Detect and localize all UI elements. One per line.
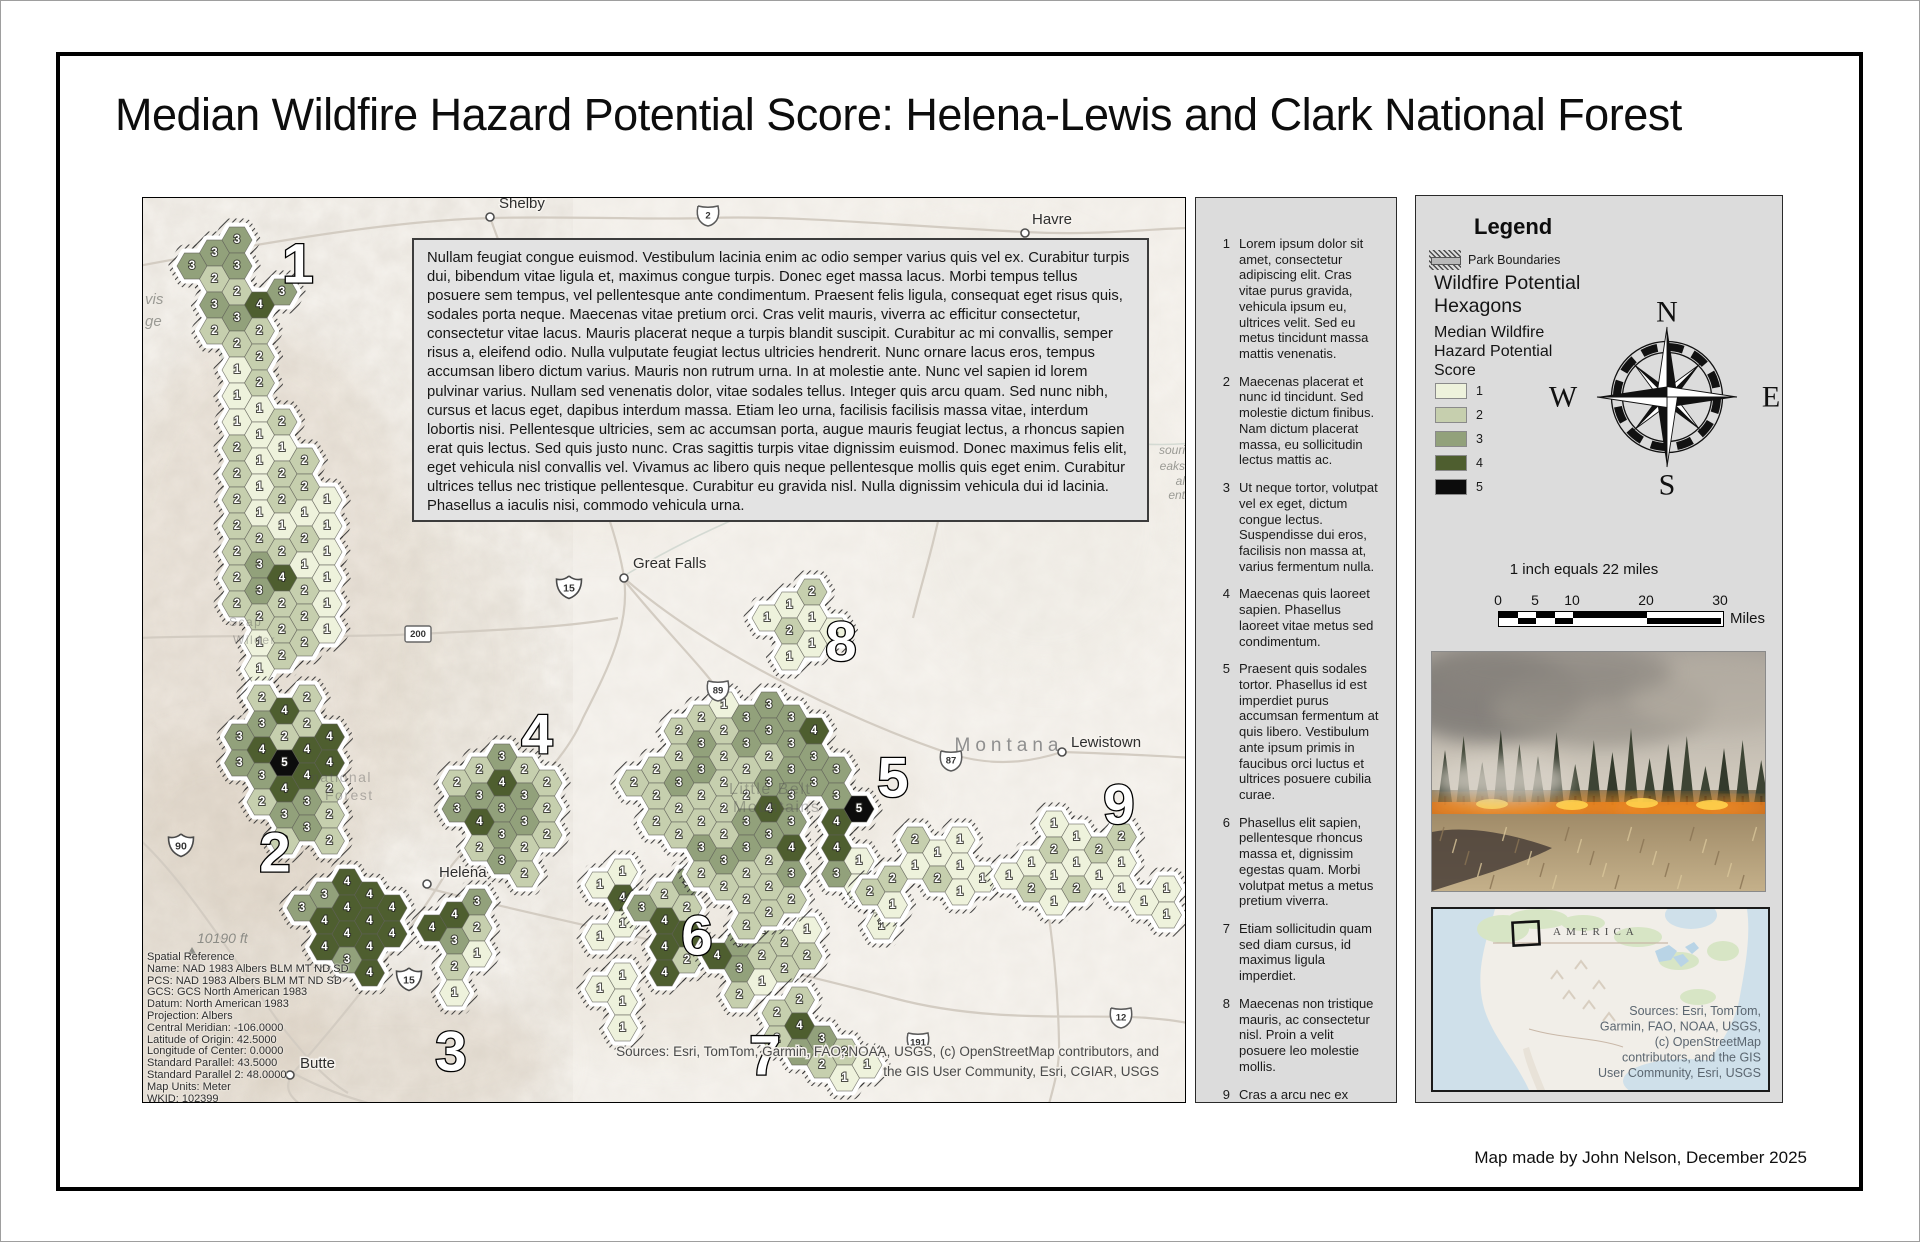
hex-score: 2 <box>259 692 265 704</box>
hex-score: 2 <box>234 468 240 480</box>
hex-score: 2 <box>279 468 285 480</box>
legend-class-row: 5 <box>1416 479 1536 495</box>
scalebar-tick-label: 30 <box>1712 592 1728 608</box>
hex-score: 2 <box>1073 883 1079 895</box>
scalebar-tick-label: 20 <box>1638 592 1654 608</box>
hex-score: 1 <box>597 983 604 995</box>
note-item: 6Phasellus elit sapien, pellentesque rho… <box>1218 815 1380 909</box>
hex-score: 2 <box>912 834 918 846</box>
hex-score: 2 <box>786 625 792 637</box>
hex-score: 2 <box>451 961 457 973</box>
note-text: Praesent quis sodales tortor. Phasellus … <box>1239 661 1380 802</box>
note-number: 5 <box>1218 661 1230 802</box>
hex-score: 1 <box>279 442 286 454</box>
faint-place-label: national <box>311 769 372 785</box>
hex-score: 2 <box>661 889 667 901</box>
scalebar-unit: Miles <box>1730 610 1765 627</box>
hex-score: 1 <box>841 1072 848 1084</box>
hex-score: 2 <box>234 546 240 558</box>
hex-score: 1 <box>324 624 331 636</box>
hex-score: 2 <box>796 994 802 1006</box>
hex-score: 1 <box>474 948 481 960</box>
hex-score: 1 <box>256 403 263 415</box>
hex-score: 1 <box>1163 883 1170 895</box>
edge-clipped-label: souri <box>1159 443 1185 457</box>
scalebar-segment <box>1536 618 1555 624</box>
hex-score: 3 <box>788 868 794 880</box>
legend-panel: Legend Park Boundaries Wildfire Potentia… <box>1415 195 1783 1103</box>
hex-score: 1 <box>721 699 728 711</box>
hex-score: 2 <box>721 803 727 815</box>
hex-score: 3 <box>236 731 242 743</box>
hex-score: 4 <box>451 909 458 921</box>
class-swatch <box>1435 479 1467 495</box>
hex-score: 1 <box>234 390 241 402</box>
hex-score: 4 <box>661 915 668 927</box>
numbered-notes-panel: 1Lorem ipsum dolor sit amet, consectetur… <box>1195 197 1397 1103</box>
faint-place-label: Mountains <box>733 799 820 816</box>
hex-score: 4 <box>304 770 311 782</box>
hex-score: 4 <box>811 725 818 737</box>
hex-score: 3 <box>766 699 772 711</box>
hex-score: 1 <box>597 931 604 943</box>
class-swatch <box>1435 455 1467 471</box>
hex-score: 3 <box>234 312 240 324</box>
hex-score: 2 <box>653 790 659 802</box>
hex-score: 3 <box>766 829 772 841</box>
main-map: 3332332432322212111122112212221211221212… <box>142 197 1186 1103</box>
hex-score: 1 <box>256 663 263 675</box>
city-marker <box>423 880 431 888</box>
hex-score: 4 <box>344 928 351 940</box>
hex-score: 2 <box>544 803 550 815</box>
class-swatch <box>1435 407 1467 423</box>
hex-score: 2 <box>766 855 772 867</box>
hex-score: 2 <box>676 725 682 737</box>
region-number-label: 1 <box>282 232 313 295</box>
hex-score: 2 <box>766 881 772 893</box>
note-text: Cras a arcu nec ex pharetra mollis. Viva… <box>1239 1087 1380 1104</box>
hex-score: 3 <box>766 725 772 737</box>
hex-score: 2 <box>889 873 895 885</box>
hex-score: 1 <box>979 873 986 885</box>
note-number: 4 <box>1218 586 1230 649</box>
hex-score: 4 <box>476 816 483 828</box>
hex-score: 1 <box>957 860 964 872</box>
hex-score: 2 <box>766 907 772 919</box>
hex-score: 1 <box>324 520 331 532</box>
hex-score: 1 <box>619 1022 626 1034</box>
hex-score: 2 <box>279 650 285 662</box>
note-text: Maecenas quis laoreet sapien. Phasellus … <box>1239 586 1380 649</box>
hex-score: 1 <box>234 364 241 376</box>
hex-score: 1 <box>301 559 308 571</box>
hex-score: 2 <box>279 546 285 558</box>
hex-score: 3 <box>743 738 749 750</box>
city-label: Great Falls <box>633 555 706 572</box>
faint-place-label: Little Belt <box>729 781 811 798</box>
hex-score: 2 <box>676 803 682 815</box>
hex-score: 3 <box>256 585 262 597</box>
inset-map-art: AMERICASources: Esri, TomTom,Garmin, FAO… <box>1433 909 1768 1090</box>
spatial-reference-line: Map Units: Meter <box>147 1082 349 1094</box>
hex-score: 3 <box>499 855 505 867</box>
hex-score: 3 <box>499 803 505 815</box>
scalebar-segment <box>1518 618 1537 624</box>
hex-score: 2 <box>301 637 307 649</box>
legend-class-row: 2 <box>1416 407 1536 423</box>
hex-score: 3 <box>811 751 817 763</box>
hex-score: 1 <box>957 886 964 898</box>
hex-score: 1 <box>324 494 331 506</box>
hex-score: 2 <box>698 868 704 880</box>
hex-score: 2 <box>259 796 265 808</box>
hex-score: 3 <box>521 790 527 802</box>
spatial-reference-line: Standard Parallel 2: 48.0000 <box>147 1070 349 1082</box>
hex-score: 3 <box>743 712 749 724</box>
hex-score: 2 <box>476 842 482 854</box>
spatial-reference-line: Name: NAD 1983 Albers BLM MT ND SD <box>147 964 349 976</box>
hex-score: 2 <box>476 764 482 776</box>
hex-score: 1 <box>324 572 331 584</box>
hex-score: 1 <box>864 1059 871 1071</box>
note-item: 8Maecenas non tristique mauris, ac conse… <box>1218 996 1380 1075</box>
edge-clipped-label: eaks <box>1160 459 1185 473</box>
city-marker <box>620 574 628 582</box>
hex-score: 2 <box>326 835 332 847</box>
svg-text:89: 89 <box>713 686 724 697</box>
hex-score: 4 <box>321 915 328 927</box>
hex-score: 3 <box>236 757 242 769</box>
hex-score: 2 <box>1096 844 1102 856</box>
hex-score: 1 <box>764 612 771 624</box>
hex-score: 2 <box>809 586 815 598</box>
park-boundaries-label: Park Boundaries <box>1468 253 1560 267</box>
hex-score: 3 <box>476 790 482 802</box>
wildfire-photo-art <box>1432 652 1765 891</box>
hex-score: 4 <box>796 1020 803 1032</box>
hex-score: 1 <box>256 507 263 519</box>
svg-text:87: 87 <box>946 756 957 767</box>
hex-score: 2 <box>521 764 527 776</box>
hex-score: 1 <box>324 598 331 610</box>
hex-score: 4 <box>256 299 263 311</box>
hex-score: 3 <box>499 829 505 841</box>
svg-text:15: 15 <box>563 583 575 595</box>
hex-score: 1 <box>256 429 263 441</box>
note-number: 2 <box>1218 374 1230 468</box>
note-number: 8 <box>1218 996 1230 1075</box>
map-description-box: Nullam feugiat congue euismod. Vestibulu… <box>412 238 1149 522</box>
hex-score: 2 <box>1051 844 1057 856</box>
elevation-label: 10190 ft <box>197 930 249 946</box>
hex-score: 2 <box>788 894 794 906</box>
hex-score: 2 <box>698 790 704 802</box>
hex-score: 3 <box>698 764 704 776</box>
hex-score: 1 <box>597 879 604 891</box>
hex-score: 2 <box>721 881 727 893</box>
hex-score: 1 <box>957 834 964 846</box>
class-label: 2 <box>1476 408 1483 422</box>
region-number-label: 2 <box>259 821 290 884</box>
hex-score: 2 <box>279 624 285 636</box>
hex-score: 3 <box>788 816 794 828</box>
hex-score: 3 <box>304 822 310 834</box>
hex-score: 3 <box>474 896 480 908</box>
note-item: 5Praesent quis sodales tortor. Phasellus… <box>1218 661 1380 802</box>
hex-score: 1 <box>1051 896 1058 908</box>
hex-score: 1 <box>619 996 626 1008</box>
note-text: Phasellus elit sapien, pellentesque rhon… <box>1239 815 1380 909</box>
region-number-label: 9 <box>1103 773 1134 836</box>
page-title: Median Wildfire Hazard Potential Score: … <box>115 89 1682 141</box>
note-number: 9 <box>1218 1087 1230 1104</box>
hex-score: 4 <box>389 928 396 940</box>
hex-score: 1 <box>934 847 941 859</box>
hex-score: 2 <box>743 894 749 906</box>
hex-score: 2 <box>781 937 787 949</box>
map-attribution: Sources: Esri, TomTom, Garmin, FAO, NOAA… <box>616 1044 1159 1059</box>
spatial-reference-line: Projection: Albers <box>147 1011 349 1023</box>
scalebar-segment <box>1555 618 1574 624</box>
svg-text:200: 200 <box>410 629 426 640</box>
hex-score: 1 <box>256 481 263 493</box>
svg-text:2: 2 <box>705 211 710 222</box>
note-item: 1Lorem ipsum dolor sit amet, consectetur… <box>1218 236 1380 362</box>
hex-score: 4 <box>788 842 795 854</box>
hex-score: 4 <box>429 922 436 934</box>
city-label: Lewistown <box>1071 734 1141 751</box>
hex-score: 4 <box>661 941 668 953</box>
hex-score: 2 <box>934 873 940 885</box>
hex-score: 3 <box>736 963 742 975</box>
hex-score: 1 <box>1051 818 1058 830</box>
spatial-reference-line: WKID: 102399 <box>147 1094 349 1103</box>
hex-score: 2 <box>721 777 727 789</box>
hex-score: 2 <box>544 829 550 841</box>
hex-score: 1 <box>1073 831 1080 843</box>
hex-score: 3 <box>256 559 262 571</box>
hex-score: 2 <box>279 416 285 428</box>
hex-score: 1 <box>256 455 263 467</box>
hex-score: 2 <box>256 533 262 545</box>
region-number-label: 8 <box>825 610 856 673</box>
region-number-label: 3 <box>435 1020 466 1083</box>
hex-score: 1 <box>1118 857 1125 869</box>
spatial-reference-line: Central Meridian: -106.0000 <box>147 1023 349 1035</box>
hex-score: 2 <box>234 286 240 298</box>
hex-score: 1 <box>809 612 816 624</box>
hex-score: 3 <box>833 790 839 802</box>
hex-score: 3 <box>811 777 817 789</box>
hex-score: 2 <box>867 886 873 898</box>
hex-score: 3 <box>211 247 217 259</box>
hex-score: 2 <box>304 718 310 730</box>
hex-score: 2 <box>234 442 240 454</box>
svg-text:N: N <box>1656 296 1678 329</box>
hex-score: 3 <box>833 764 839 776</box>
hex-score: 3 <box>259 770 265 782</box>
compass-rose-icon: NESW <box>1552 300 1783 498</box>
hex-score: 2 <box>326 809 332 821</box>
note-item: 4Maecenas quis laoreet sapien. Phasellus… <box>1218 586 1380 649</box>
note-number: 6 <box>1218 815 1230 909</box>
hex-score: 2 <box>211 325 217 337</box>
legend-title: Legend <box>1474 214 1552 240</box>
hex-score: 2 <box>819 1059 825 1071</box>
hex-score: 4 <box>714 950 721 962</box>
hex-score: 2 <box>301 611 307 623</box>
hex-score: 3 <box>454 803 460 815</box>
note-text: Maecenas placerat et nunc id tincidunt. … <box>1239 374 1380 468</box>
hex-score: 2 <box>234 598 240 610</box>
hex-score: 4 <box>281 783 288 795</box>
hex-score: 1 <box>786 651 793 663</box>
class-swatch <box>1435 383 1467 399</box>
hex-score: 2 <box>721 751 727 763</box>
hex-score: 4 <box>259 744 266 756</box>
hex-score: 4 <box>344 876 351 888</box>
hex-score: 2 <box>653 764 659 776</box>
hex-score: 1 <box>1028 857 1035 869</box>
hex-score: 4 <box>661 967 668 979</box>
hex-score: 2 <box>774 1007 780 1019</box>
edge-clipped-label: ge <box>145 313 162 330</box>
hex-score: 2 <box>279 598 285 610</box>
note-item: 7Etiam sollicitudin quam sed diam cursus… <box>1218 921 1380 984</box>
class-label: 4 <box>1476 456 1483 470</box>
hex-score: 2 <box>743 764 749 776</box>
note-item: 3Ut neque tortor, volutpat vel ex eget, … <box>1218 480 1380 574</box>
city-marker <box>486 213 494 221</box>
hex-score: 3 <box>788 764 794 776</box>
hex-score: 2 <box>743 920 749 932</box>
hex-score: 3 <box>211 299 217 311</box>
hex-score: 2 <box>781 963 787 975</box>
city-label: Havre <box>1032 211 1072 228</box>
hex-score: 2 <box>234 520 240 532</box>
wildfire-photo <box>1431 651 1766 892</box>
svg-text:S: S <box>1659 469 1676 502</box>
hex-score: 4 <box>281 705 288 717</box>
hex-score: 2 <box>301 455 307 467</box>
author-credit: Map made by John Nelson, December 2025 <box>1474 1148 1807 1168</box>
hex-score: 1 <box>889 899 896 911</box>
scalebar-tick-label: 10 <box>1564 592 1580 608</box>
hex-score: 3 <box>639 902 645 914</box>
inset-sources-line: (c) OpenStreetMap <box>1655 1035 1761 1049</box>
hex-score: 1 <box>301 507 308 519</box>
hex-score: 1 <box>759 976 766 988</box>
hex-score: 1 <box>1163 909 1170 921</box>
hex-score: 3 <box>721 855 727 867</box>
edge-clipped-label: al <box>1176 474 1186 488</box>
hex-score: 1 <box>786 599 793 611</box>
hex-score: 2 <box>1028 883 1034 895</box>
svg-text:15: 15 <box>403 975 415 987</box>
map-attribution: the GIS User Community, Esri, CGIAR, USG… <box>883 1064 1159 1079</box>
hex-score: 4 <box>833 816 840 828</box>
hex-score: 4 <box>366 915 373 927</box>
hex-score: 1 <box>912 860 919 872</box>
hex-score: 2 <box>736 989 742 1001</box>
hex-score: 3 <box>451 935 457 947</box>
class-label: 3 <box>1476 432 1483 446</box>
inset-sources-line: contributors, and the GIS <box>1622 1051 1761 1065</box>
hex-score: 3 <box>788 712 794 724</box>
region-number-label: 4 <box>521 703 552 766</box>
hex-score: 2 <box>234 338 240 350</box>
hex-score: 4 <box>304 744 311 756</box>
city-label: Helena <box>439 864 487 881</box>
class-swatch <box>1435 431 1467 447</box>
hex-score: 2 <box>234 494 240 506</box>
hex-score: 2 <box>676 829 682 841</box>
hex-score: 2 <box>256 325 262 337</box>
hex-score: 4 <box>366 967 373 979</box>
note-number: 1 <box>1218 236 1230 362</box>
edge-clipped-label: ent <box>1168 488 1185 502</box>
hex-score: 2 <box>474 922 480 934</box>
scalebar-segment <box>1499 618 1518 624</box>
hex-score: 4 <box>389 902 396 914</box>
svg-text:E: E <box>1762 381 1780 414</box>
hex-score: 2 <box>804 950 810 962</box>
hex-score: 4 <box>326 757 333 769</box>
hex-score: 3 <box>676 777 682 789</box>
hex-score: 4 <box>833 842 840 854</box>
hex-score: 1 <box>324 546 331 558</box>
hex-score: 4 <box>344 902 351 914</box>
map-layout-page: Median Wildfire Hazard Potential Score: … <box>0 0 1920 1242</box>
hex-score: 1 <box>809 638 816 650</box>
hex-score: 2 <box>301 585 307 597</box>
region-number-label: 6 <box>681 904 712 967</box>
scalebar-tick-label: 5 <box>1531 592 1539 608</box>
hex-score: 1 <box>279 520 286 532</box>
hex-score: 4 <box>366 889 373 901</box>
hex-score: 1 <box>619 866 626 878</box>
hex-score: 4 <box>279 572 286 584</box>
edge-clipped-label: vis <box>145 291 164 308</box>
hex-score: 1 <box>451 987 458 999</box>
hex-score: 2 <box>301 481 307 493</box>
hex-score: 2 <box>281 731 287 743</box>
note-text: Etiam sollicitudin quam sed diam cursus,… <box>1239 921 1380 984</box>
hex-score: 1 <box>1096 870 1103 882</box>
hex-score: 1 <box>1073 857 1080 869</box>
hex-score: 2 <box>653 816 659 828</box>
hex-score: 3 <box>281 809 287 821</box>
hex-score: 2 <box>304 692 310 704</box>
note-text: Lorem ipsum dolor sit amet, consectetur … <box>1239 236 1380 362</box>
hex-score: 2 <box>256 377 262 389</box>
hex-score: 3 <box>743 816 749 828</box>
hex-score: 2 <box>301 533 307 545</box>
hex-score: 5 <box>281 757 288 769</box>
hex-score: 2 <box>544 777 550 789</box>
hex-score: 3 <box>304 796 310 808</box>
hex-score: 3 <box>299 902 305 914</box>
hex-score: 3 <box>833 868 839 880</box>
hex-score: 2 <box>766 751 772 763</box>
inset-sources-line: Garmin, FAO, NOAA, USGS, <box>1600 1020 1761 1034</box>
inset-america-label: AMERICA <box>1553 926 1639 938</box>
hex-score: 3 <box>698 738 704 750</box>
hex-score: 3 <box>234 234 240 246</box>
hex-score: 2 <box>279 494 285 506</box>
hex-score: 1 <box>1141 896 1148 908</box>
